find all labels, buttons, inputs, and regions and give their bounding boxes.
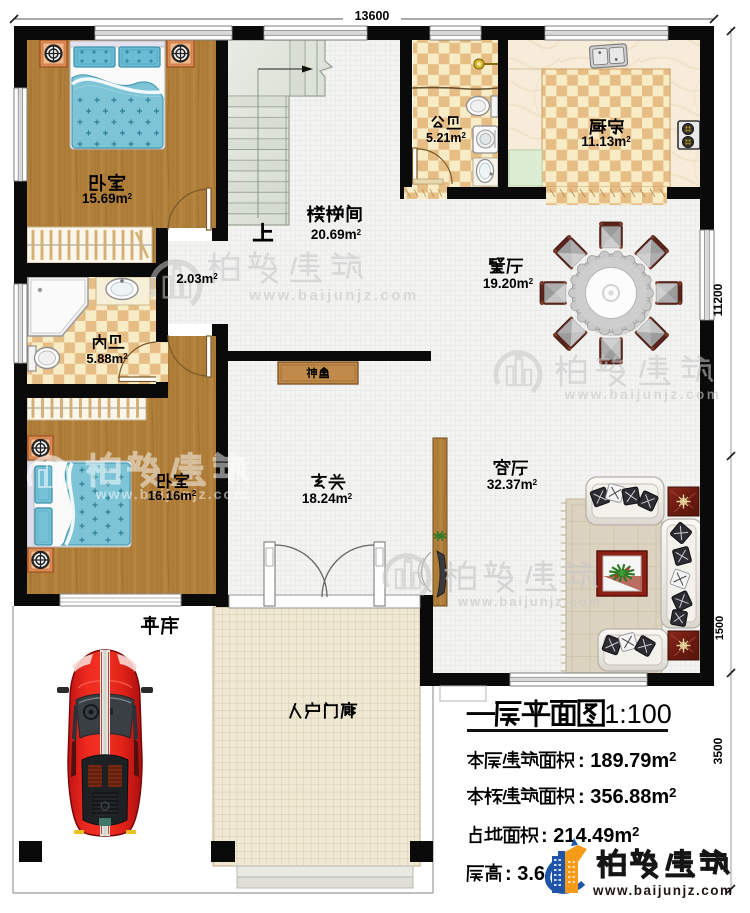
svg-text:5.88m2: 5.88m2 bbox=[86, 351, 128, 366]
svg-text:1500: 1500 bbox=[714, 616, 726, 640]
svg-text:www.baijunjz.com: www.baijunjz.com bbox=[248, 287, 418, 304]
svg-text:3500: 3500 bbox=[711, 737, 725, 764]
svg-text:13600: 13600 bbox=[355, 9, 390, 23]
svg-text:www.baijunjz.com: www.baijunjz.com bbox=[564, 387, 722, 402]
svg-text:: 356.88m2: : 356.88m2 bbox=[578, 785, 676, 808]
svg-text:19.20m2: 19.20m2 bbox=[483, 276, 534, 291]
svg-text:16.16m2: 16.16m2 bbox=[148, 488, 197, 503]
svg-text:: 214.49m2: : 214.49m2 bbox=[541, 824, 639, 847]
svg-text:www.baijunjz.com: www.baijunjz.com bbox=[592, 883, 734, 898]
svg-text:2.03m2: 2.03m2 bbox=[176, 271, 218, 286]
svg-text:18.24m2: 18.24m2 bbox=[302, 491, 353, 506]
svg-text:: 3.6: : 3.6 bbox=[505, 863, 545, 885]
svg-text:15.69m2: 15.69m2 bbox=[82, 191, 133, 206]
svg-text:32.37m2: 32.37m2 bbox=[487, 477, 538, 492]
svg-text:20.69m2: 20.69m2 bbox=[311, 227, 362, 242]
svg-text:: 189.79m2: : 189.79m2 bbox=[578, 749, 676, 772]
svg-text:www.baijunjz.com: www.baijunjz.com bbox=[457, 594, 602, 609]
svg-text:11200: 11200 bbox=[711, 283, 725, 316]
svg-text:5.21m2: 5.21m2 bbox=[426, 131, 466, 145]
svg-text:1:100: 1:100 bbox=[604, 699, 672, 729]
svg-text:11.13m2: 11.13m2 bbox=[581, 134, 631, 149]
